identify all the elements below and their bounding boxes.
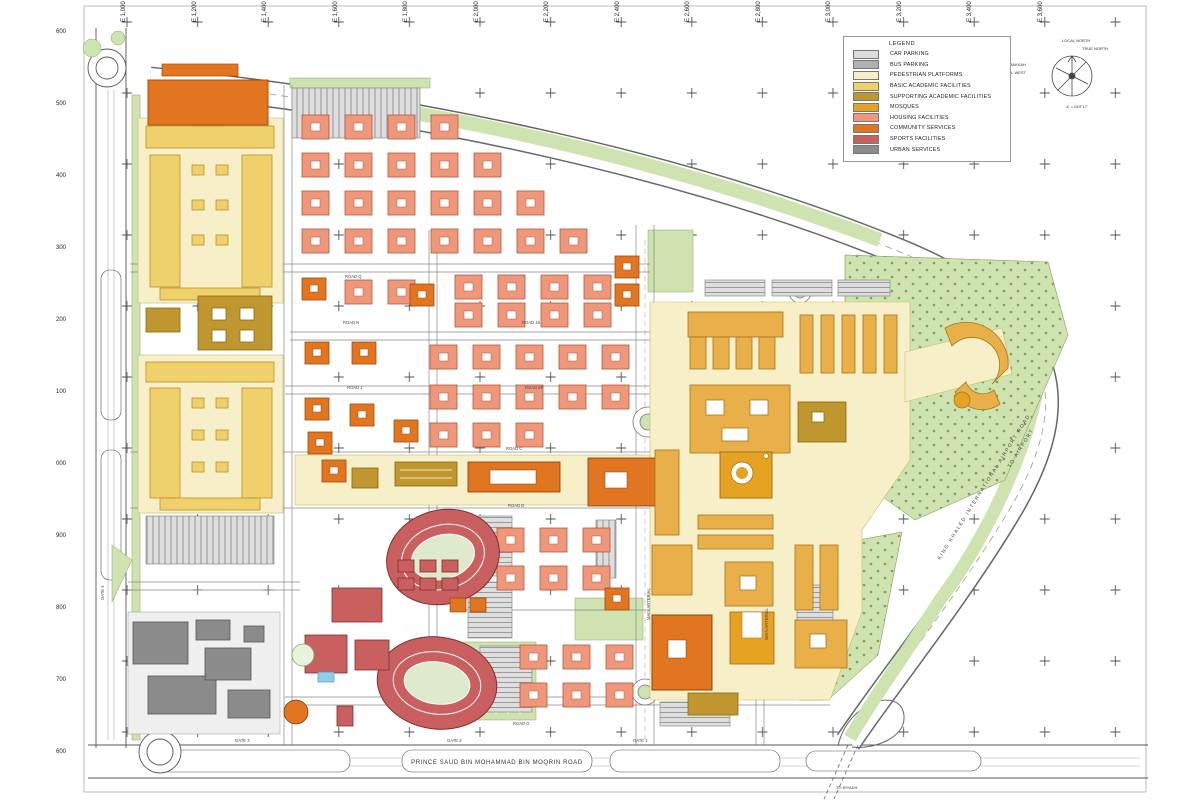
- svg-text:ROAD C: ROAD C: [506, 446, 522, 451]
- legend-label: SUPPORTING ACADEMIC FACILITIES: [890, 94, 991, 100]
- legend-row: SUPPORTING ACADEMIC FACILITIES: [844, 91, 1010, 102]
- legend-items: CAR PARKING BUS PARKING PEDESTRIAN PLATF…: [844, 49, 1010, 155]
- urban-services-zone: [128, 612, 280, 734]
- legend-row: BUS PARKING: [844, 60, 1010, 71]
- community-core-block: [652, 615, 712, 690]
- legend-swatch: [853, 113, 879, 122]
- legend-row: SPORTS FACILITIES: [844, 134, 1010, 145]
- bus-parking-strip: [705, 280, 765, 296]
- gate-4-label: GATE 4: [100, 585, 105, 600]
- legend-label: CAR PARKING: [890, 51, 929, 57]
- gate-1-label: GATE 1: [633, 738, 648, 743]
- true-north-label: TRUE NORTH: [1082, 46, 1108, 51]
- legend-label: PEDESTRIAN PLATFORMS: [890, 72, 963, 78]
- svg-text:ROAD 8P: ROAD 8P: [525, 385, 544, 390]
- local-north-label: LOCAL NORTH: [1062, 38, 1090, 43]
- svg-text:MAIN ARTERIAL: MAIN ARTERIAL: [646, 588, 651, 620]
- legend-swatch: [853, 103, 879, 112]
- circular-plaza: [284, 700, 308, 724]
- legend-row: PEDESTRIAN PLATFORMS: [844, 70, 1010, 81]
- legend-label: COMMUNITY SERVICES: [890, 125, 955, 131]
- makkah-label: MAKKAH: [1009, 62, 1026, 67]
- legend-label: HOUSING FACILITIES: [890, 115, 949, 121]
- svg-text:ROAD N: ROAD N: [343, 320, 359, 325]
- legend-row: COMMUNITY SERVICES: [844, 123, 1010, 134]
- svg-text:ROAD Q: ROAD Q: [345, 274, 362, 279]
- legend-title: LEGEND: [889, 41, 1010, 47]
- legend-row: URBAN SERVICES: [844, 144, 1010, 155]
- legend-label: SPORTS FACILITIES: [890, 136, 945, 142]
- legend-swatch: [853, 145, 879, 154]
- legend-swatch: [853, 60, 879, 69]
- gate-3-label: GATE 3: [235, 738, 250, 743]
- legend-label: URBAN SERVICES: [890, 147, 940, 153]
- svg-text:ROAD J: ROAD J: [347, 385, 362, 390]
- legend-label: MOSQUES: [890, 104, 919, 110]
- legend-swatch: [853, 135, 879, 144]
- legend-swatch: [853, 124, 879, 133]
- legend-row: MOSQUES: [844, 102, 1010, 113]
- legend-label: BASIC ACADEMIC FACILITIES: [890, 83, 971, 89]
- svg-text:ROAD 16: ROAD 16: [522, 320, 541, 325]
- legend-label: BUS PARKING: [890, 62, 929, 68]
- site-plan-drawing: PRINCE SAUD BIN MOHAMMAD BIN MOQRIN ROAD…: [0, 0, 1200, 800]
- south-road-label: PRINCE SAUD BIN MOHAMMAD BIN MOQRIN ROAD: [411, 760, 583, 766]
- to-riyadh-label: TO RIYADH: [836, 785, 858, 790]
- legend-swatch: [853, 82, 879, 91]
- swimming-pool: [318, 672, 334, 682]
- svg-text:MAIN ARTERIAL: MAIN ARTERIAL: [764, 608, 769, 640]
- campus-master-plan-sheet: { "palette": { "car_parking": "#dcdcdc",…: [0, 0, 1200, 800]
- legend-row: CAR PARKING: [844, 49, 1010, 60]
- legend-swatch: [853, 71, 879, 80]
- legend-row: HOUSING FACILITIES: [844, 113, 1010, 124]
- legend-swatch: [853, 92, 879, 101]
- legend-swatch: [853, 50, 879, 59]
- gate-2-label: GATE 2: [447, 738, 462, 743]
- legend-box: LEGEND CAR PARKING BUS PARKING PEDESTRIA…: [843, 36, 1011, 162]
- svg-text:ROAD D: ROAD D: [508, 503, 524, 508]
- svg-text:ROAD G: ROAD G: [513, 721, 530, 726]
- legend-row: BASIC ACADEMIC FACILITIES: [844, 81, 1010, 92]
- compass-angle: ∠ = 043°17': [1066, 104, 1088, 109]
